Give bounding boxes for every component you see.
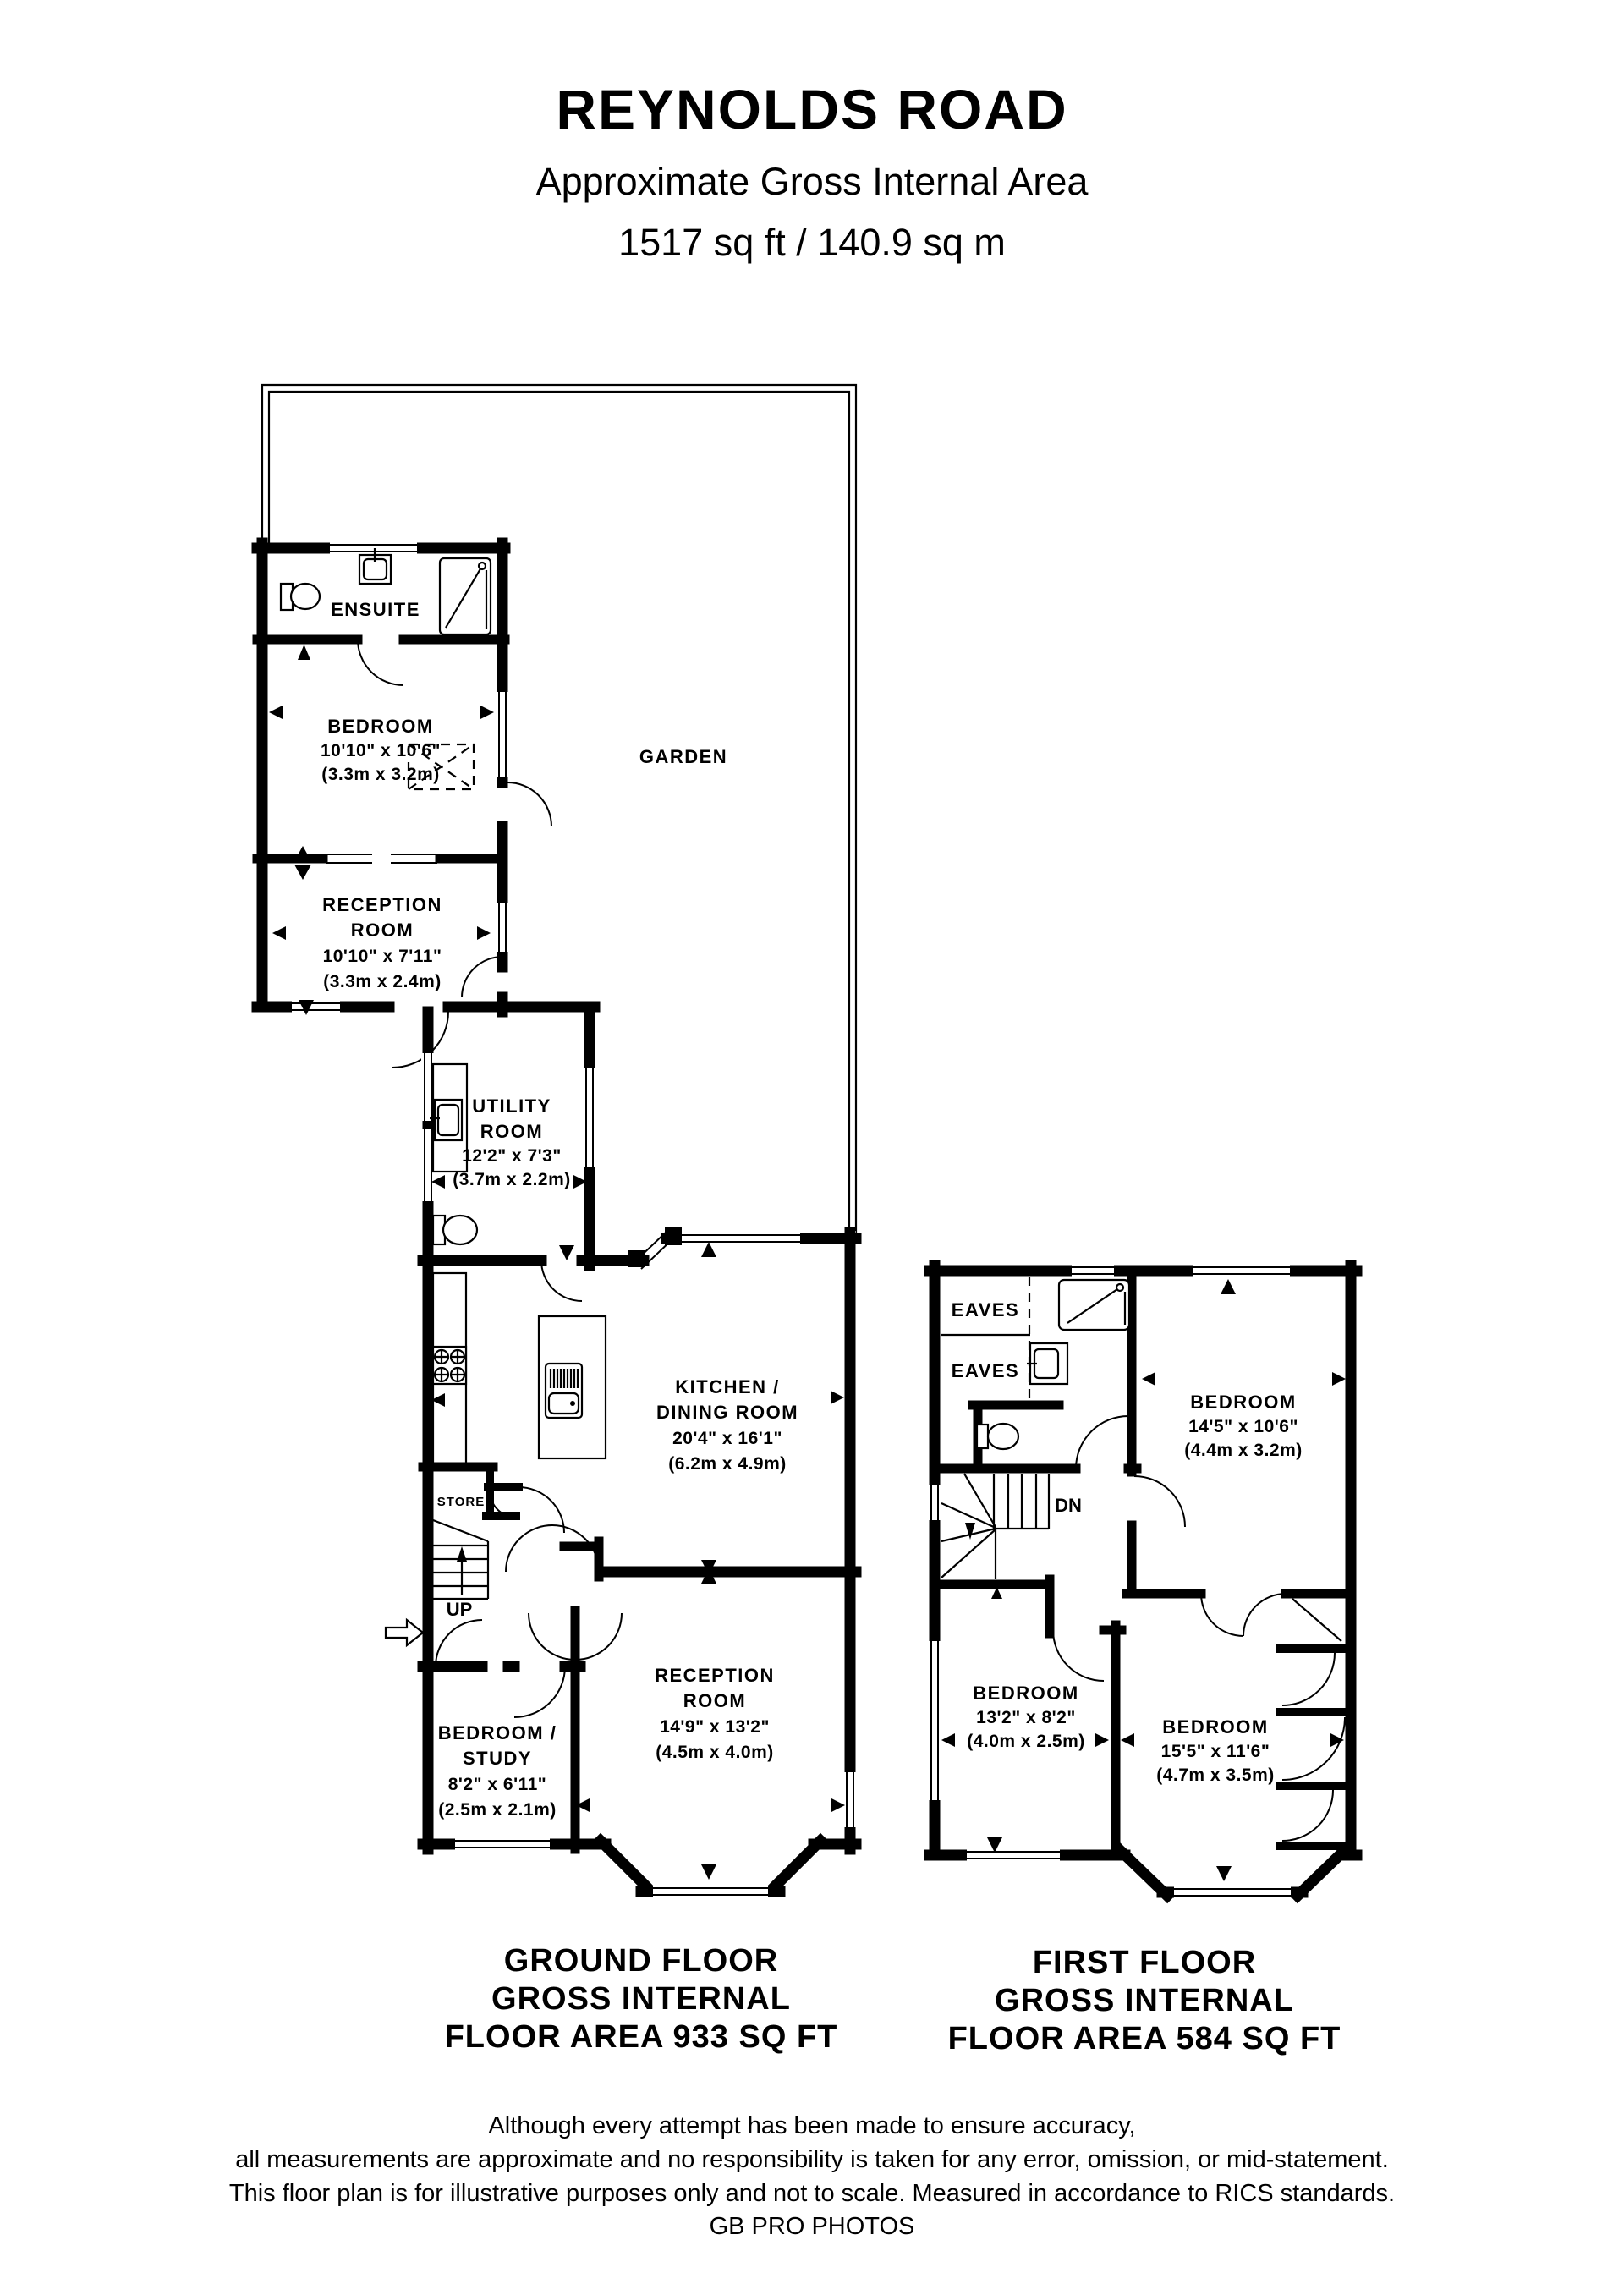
- ground-caption-line2: GROSS INTERNAL: [491, 1981, 791, 2017]
- ground-floor-caption: GROUND FLOOR GROSS INTERNAL FLOOR AREA 9…: [445, 1943, 838, 2055]
- utility-toilet-icon: [433, 1216, 477, 1244]
- ff-shower-icon: [1059, 1280, 1129, 1330]
- reception-front-label-2: ROOM: [683, 1690, 746, 1711]
- utility-sink-icon: [430, 1100, 462, 1140]
- ff-bedroom-rear-label: BEDROOM: [1190, 1392, 1296, 1413]
- toilet-icon: [281, 584, 320, 610]
- footer-disclaimer: Although every attempt has been made to …: [229, 2112, 1395, 2240]
- page-area: 1517 sq ft / 140.9 sq m: [618, 221, 1006, 264]
- shower-icon: [440, 558, 491, 634]
- first-caption-line3: FLOOR AREA 584 SQ FT: [948, 2021, 1341, 2056]
- study-label-1: BEDROOM /: [438, 1722, 557, 1743]
- stairs-up-label: UP: [447, 1599, 473, 1620]
- bedroom-rear-dims-ft: 10'10" x 10'6": [321, 741, 441, 760]
- hob-icon: [433, 1347, 466, 1384]
- reception-front-label-1: RECEPTION: [655, 1665, 775, 1686]
- ff-bedroom-left-label: BEDROOM: [973, 1683, 1078, 1704]
- ground-caption-line3: FLOOR AREA 933 SQ FT: [445, 2019, 838, 2055]
- ff-toilet-icon: [977, 1424, 1018, 1449]
- eaves-top-label: EAVES: [952, 1299, 1019, 1320]
- ff-bedroom-left-dims-ft: 13'2" x 8'2": [976, 1708, 1076, 1727]
- ff-bedroom-front-label: BEDROOM: [1162, 1716, 1268, 1738]
- footer-line3: This floor plan is for illustrative purp…: [229, 2180, 1395, 2207]
- kitchen-label-1: KITCHEN /: [675, 1376, 780, 1397]
- bedroom-rear-dims-m: (3.3m x 3.2m): [321, 765, 440, 784]
- ff-bedroom-left-dims-m: (4.0m x 2.5m): [967, 1732, 1085, 1751]
- kitchen-dims-ft: 20'4" x 16'1": [672, 1429, 782, 1448]
- ff-bedroom-rear-dims-m: (4.4m x 3.2m): [1184, 1441, 1303, 1460]
- footer-line2: all measurements are approximate and no …: [235, 2146, 1389, 2173]
- utility-label-1: UTILITY: [472, 1095, 551, 1117]
- eaves-bottom-label: EAVES: [952, 1360, 1019, 1381]
- reception-front-dims-ft: 14'9" x 13'2": [660, 1717, 770, 1737]
- page-subtitle: Approximate Gross Internal Area: [536, 160, 1089, 203]
- study-dims-ft: 8'2" x 6'11": [448, 1775, 547, 1794]
- utility-dims-m: (3.7m x 2.2m): [453, 1170, 571, 1189]
- floorplan-page: REYNOLDS ROAD Approximate Gross Internal…: [0, 0, 1624, 2295]
- first-caption-line2: GROSS INTERNAL: [995, 1983, 1294, 2018]
- kitchen-label-2: DINING ROOM: [656, 1402, 798, 1423]
- first-floor-caption: FIRST FLOOR GROSS INTERNAL FLOOR AREA 58…: [948, 1945, 1341, 2056]
- ff-bedroom-rear-dims-ft: 14'5" x 10'6": [1188, 1417, 1298, 1436]
- ensuite-label: ENSUITE: [331, 599, 420, 620]
- page-title: REYNOLDS ROAD: [556, 78, 1067, 140]
- footer-line1: Although every attempt has been made to …: [488, 2112, 1135, 2139]
- reception-rear-dims-ft: 10'10" x 7'11": [323, 947, 442, 966]
- utility-dims-ft: 12'2" x 7'3": [462, 1146, 562, 1166]
- ground-caption-line1: GROUND FLOOR: [504, 1943, 778, 1979]
- footer-line4: GB PRO PHOTOS: [710, 2213, 915, 2240]
- stairs-down-label: DN: [1055, 1495, 1082, 1516]
- garden-label: GARDEN: [639, 746, 727, 767]
- store-label: STORE: [437, 1495, 485, 1509]
- utility-label-2: ROOM: [480, 1121, 543, 1142]
- study-label-2: STUDY: [463, 1748, 532, 1769]
- bedroom-rear-label: BEDROOM: [327, 716, 433, 737]
- reception-rear-label-2: ROOM: [351, 920, 414, 941]
- entrance-arrow-icon: [386, 1620, 423, 1645]
- study-dims-m: (2.5m x 2.1m): [438, 1800, 557, 1820]
- ff-sink-icon: [1027, 1343, 1067, 1384]
- reception-rear-dims-m: (3.3m x 2.4m): [323, 972, 442, 991]
- first-caption-line1: FIRST FLOOR: [1033, 1945, 1256, 1980]
- reception-front-dims-m: (4.5m x 4.0m): [656, 1743, 774, 1762]
- reception-rear-label-1: RECEPTION: [322, 894, 442, 915]
- first-floor-footprint: [930, 1266, 1357, 1855]
- header: REYNOLDS ROAD Approximate Gross Internal…: [536, 78, 1089, 264]
- floorplan-drawing: REYNOLDS ROAD Approximate Gross Internal…: [0, 0, 1624, 2295]
- ff-bedroom-front-dims-ft: 15'5" x 11'6": [1161, 1742, 1270, 1761]
- range-cooker-icon: [546, 1364, 582, 1418]
- kitchen-dims-m: (6.2m x 4.9m): [668, 1454, 787, 1474]
- ff-bedroom-front-dims-m: (4.7m x 3.5m): [1156, 1765, 1275, 1785]
